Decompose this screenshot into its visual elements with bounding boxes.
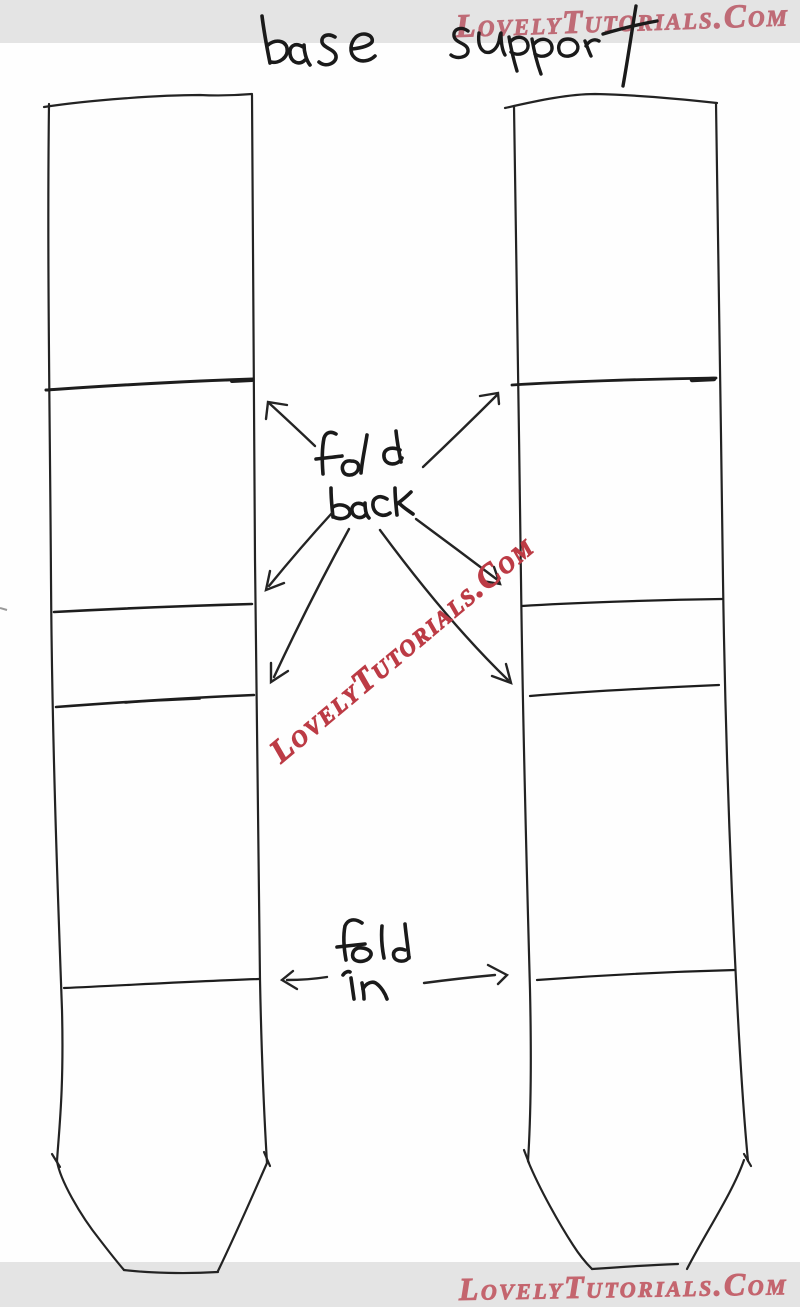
- svg-text:LovelyTutorials.Com: LovelyTutorials.Com: [457, 1265, 788, 1307]
